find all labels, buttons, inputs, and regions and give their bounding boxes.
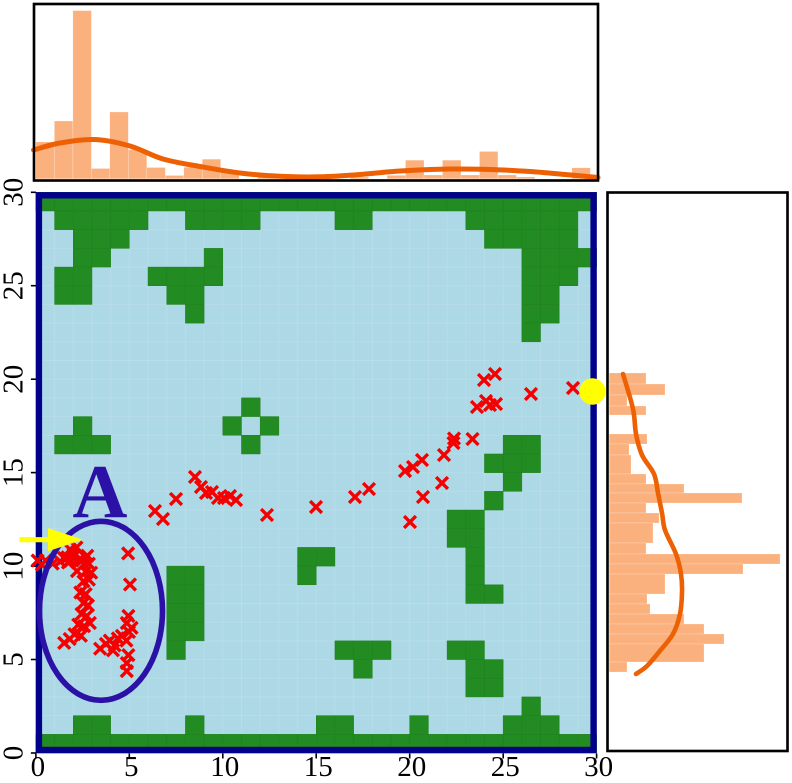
- svg-text:10: 10: [210, 751, 239, 783]
- svg-text:A: A: [73, 450, 128, 534]
- svg-text:30: 30: [584, 751, 613, 783]
- svg-text:5: 5: [0, 652, 30, 667]
- svg-text:30: 30: [0, 178, 30, 207]
- svg-text:0: 0: [0, 746, 30, 761]
- svg-text:25: 25: [491, 751, 520, 783]
- svg-text:25: 25: [0, 271, 30, 300]
- svg-text:5: 5: [124, 751, 139, 783]
- svg-text:20: 20: [397, 751, 426, 783]
- svg-text:10: 10: [0, 552, 30, 581]
- svg-text:20: 20: [0, 365, 30, 394]
- svg-text:15: 15: [0, 458, 30, 487]
- svg-text:0: 0: [31, 751, 46, 783]
- svg-text:15: 15: [304, 751, 333, 783]
